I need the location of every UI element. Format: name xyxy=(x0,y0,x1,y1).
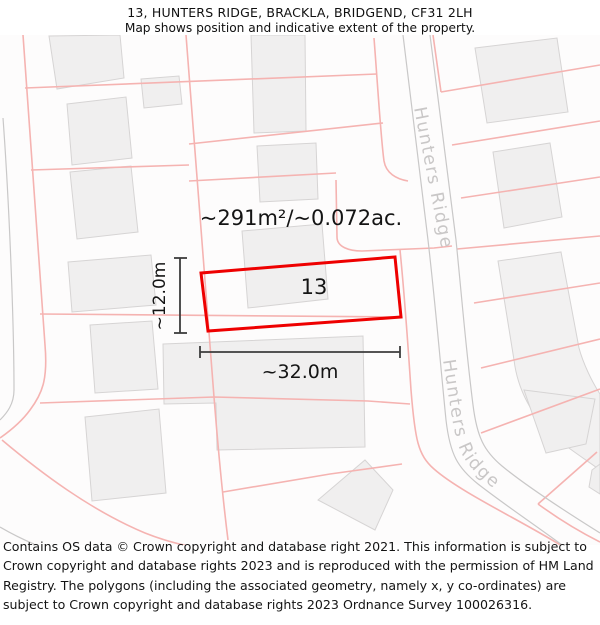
building-footprint xyxy=(70,166,138,239)
width-dimension-label: ~32.0m xyxy=(240,361,360,383)
building-footprint xyxy=(68,255,156,312)
property-map-report: 13, HUNTERS RIDGE, BRACKLA, BRIDGEND, CF… xyxy=(0,0,600,625)
page-title: 13, HUNTERS RIDGE, BRACKLA, BRIDGEND, CF… xyxy=(0,5,600,20)
map-area: Hunters Ridge Hunters Ridge ~291m²/~0.07… xyxy=(0,35,600,545)
page-subtitle: Map shows position and indicative extent… xyxy=(0,21,600,35)
building-footprint xyxy=(251,35,306,133)
area-annotation: ~291m²/~0.072ac. xyxy=(170,206,432,230)
building-footprint xyxy=(67,97,132,165)
building-footprint xyxy=(141,76,182,108)
building-footprint xyxy=(90,321,158,393)
building-footprint xyxy=(475,38,568,123)
plot-number-label: 13 xyxy=(293,275,335,299)
copyright-notice: Contains OS data © Crown copyright and d… xyxy=(3,537,598,615)
building-footprint xyxy=(257,143,318,202)
building-footprint xyxy=(493,143,562,228)
height-dimension-label: ~12.0m xyxy=(150,256,170,336)
building-footprint xyxy=(85,409,166,501)
